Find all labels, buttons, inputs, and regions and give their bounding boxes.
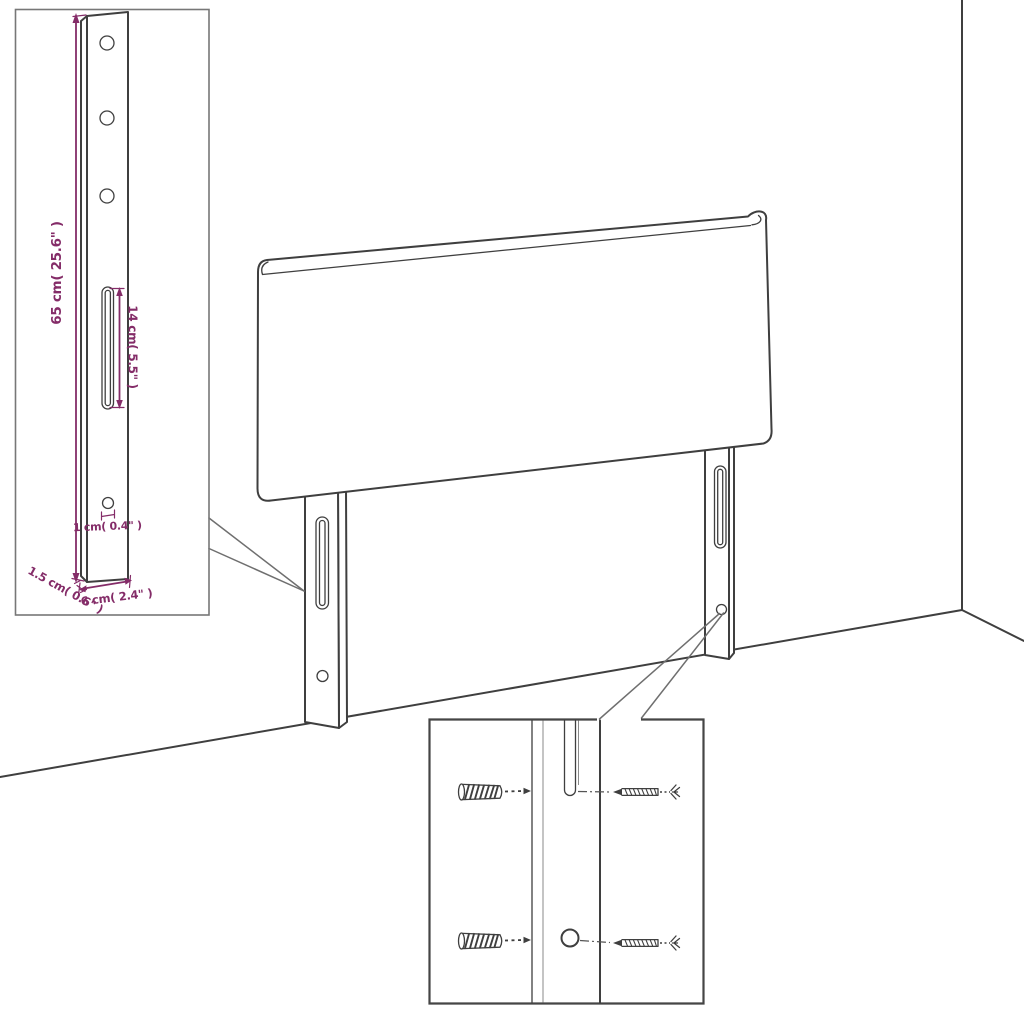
dim-height-label: 65 cm( 25.6" ) xyxy=(49,221,65,325)
right-leg-hole xyxy=(717,605,727,615)
floor-line-left xyxy=(0,610,962,777)
leg-detail-inset: 65 cm( 25.6" ) 14 cm( 5.5" ) 1 cm( 0.4" … xyxy=(16,10,210,617)
fastener-row-upper xyxy=(459,784,680,800)
screw-guide-line xyxy=(580,941,610,943)
anchor-dash-line xyxy=(505,940,524,941)
headboard-assembly-diagram: 65 cm( 25.6" ) 14 cm( 5.5" ) 1 cm( 0.4" … xyxy=(0,0,1024,1024)
wall-anchor-icon xyxy=(459,784,502,800)
screw-icon xyxy=(613,785,680,799)
left-leg xyxy=(305,487,347,728)
anchor-dash-line xyxy=(505,791,524,792)
mounting-strip xyxy=(532,721,600,1003)
headboard-panel-face xyxy=(258,211,772,500)
screw-guide-line xyxy=(578,792,610,793)
strip-slot xyxy=(565,721,576,796)
dim-width-label: 6 cm( 2.4" ) xyxy=(80,586,153,609)
floor-line-right xyxy=(962,610,1024,641)
left-leg-front-face xyxy=(305,488,339,728)
callout-left-leg xyxy=(209,518,304,591)
anchor-arrow xyxy=(524,788,532,794)
callout-line xyxy=(642,613,724,718)
dim-hole-label: 1 cm( 0.4" ) xyxy=(73,519,142,534)
screw-icon xyxy=(613,936,680,950)
right-leg xyxy=(705,442,734,659)
callout-line xyxy=(600,614,720,720)
leg-detail-hole-1 xyxy=(100,36,114,50)
leg-detail-hole-2 xyxy=(100,111,114,125)
leg-detail-hole-3 xyxy=(100,189,114,203)
dim-slot-label: 14 cm( 5.5" ) xyxy=(126,305,140,388)
leg-detail-small-hole xyxy=(103,498,114,509)
screw-detail-border xyxy=(430,720,704,1004)
strip-hole xyxy=(562,930,579,947)
screw-detail-inset xyxy=(430,720,704,1004)
wall-anchor-icon xyxy=(459,933,502,949)
diagram-svg: 65 cm( 25.6" ) 14 cm( 5.5" ) 1 cm( 0.4" … xyxy=(0,0,1024,1024)
headboard-panel xyxy=(258,211,772,500)
leg-detail-front-face xyxy=(87,12,128,582)
left-leg-hole xyxy=(317,671,328,682)
anchor-arrow xyxy=(524,937,532,943)
